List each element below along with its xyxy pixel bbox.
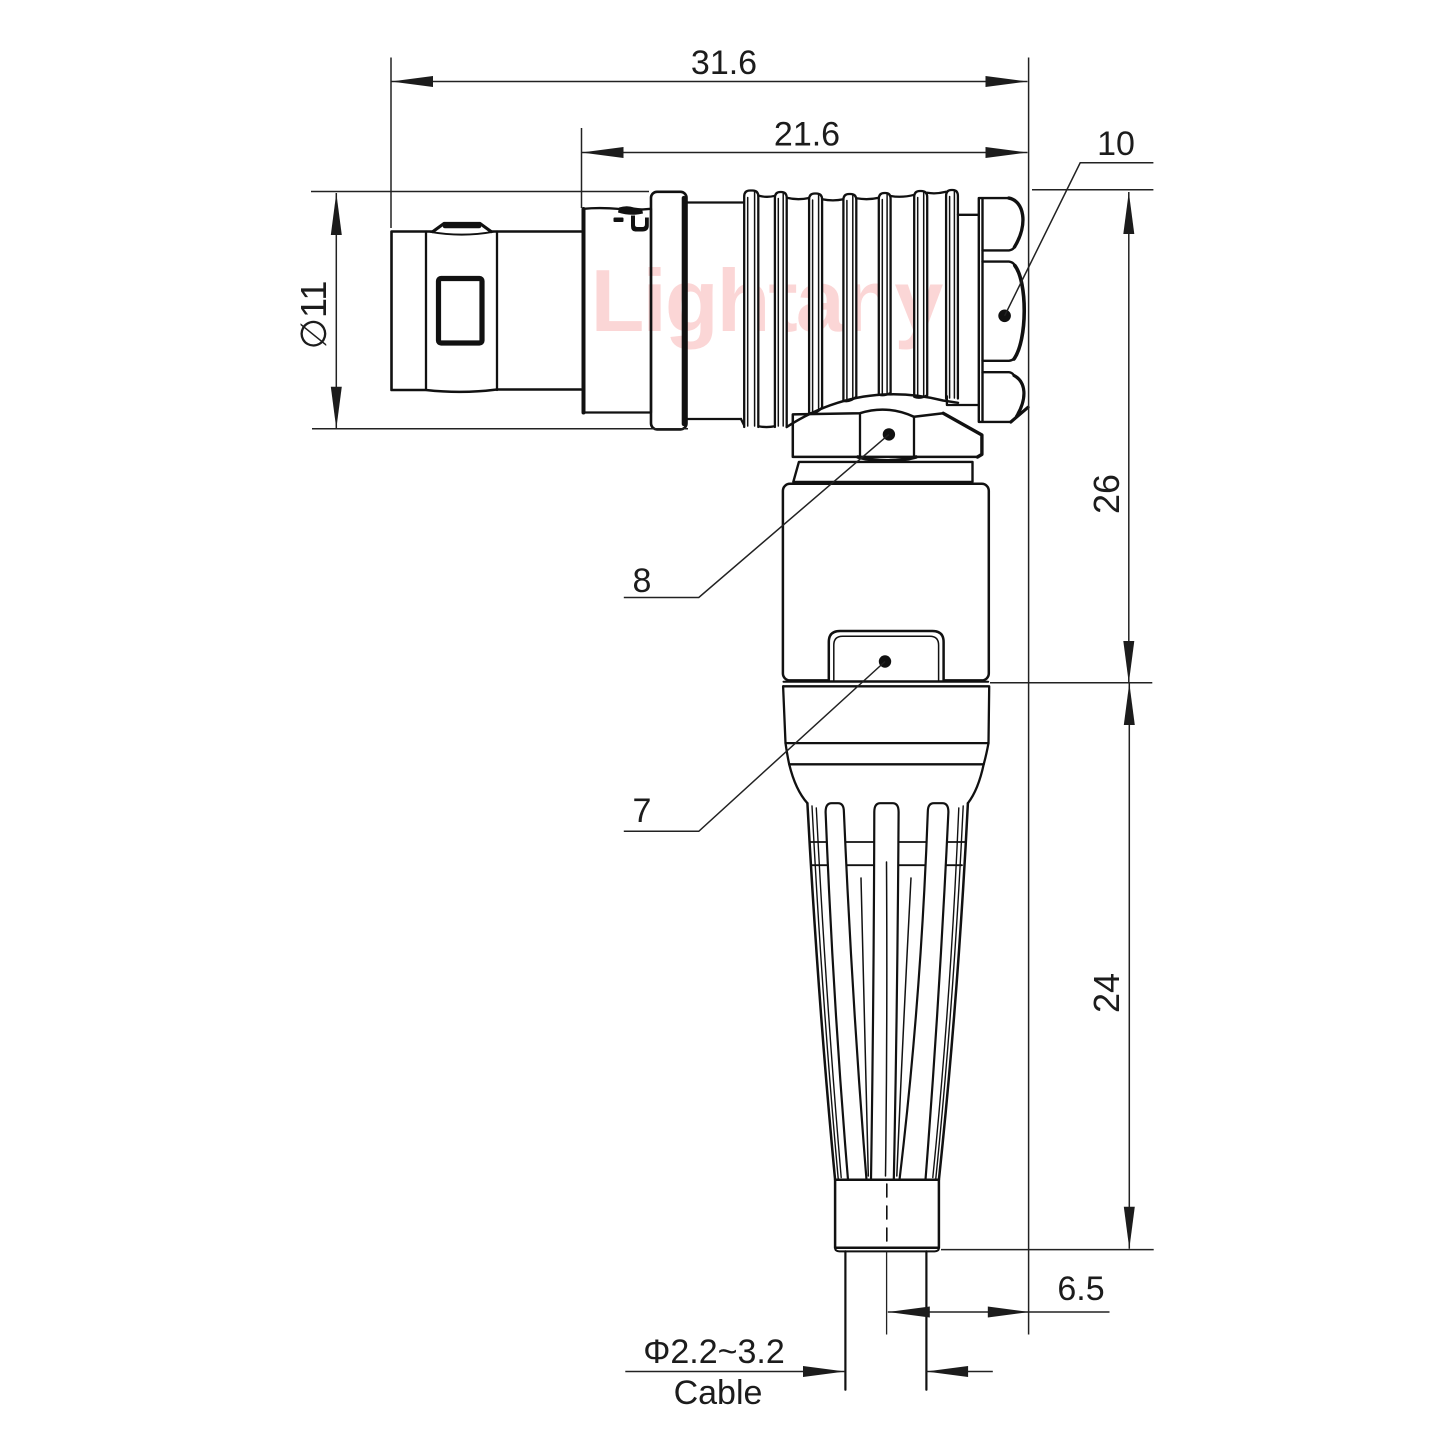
svg-text:31.6: 31.6 bbox=[691, 44, 757, 82]
svg-text:10: 10 bbox=[1097, 125, 1135, 163]
svg-text:Φ2.2~3.2: Φ2.2~3.2 bbox=[643, 1333, 785, 1371]
svg-text:8: 8 bbox=[633, 562, 652, 600]
svg-text:7: 7 bbox=[633, 792, 652, 830]
svg-text:21.6: 21.6 bbox=[774, 116, 840, 154]
svg-text:∅11: ∅11 bbox=[293, 281, 334, 350]
svg-text:24: 24 bbox=[1086, 973, 1127, 1013]
svg-text:Cable: Cable bbox=[674, 1374, 763, 1412]
svg-text:6.5: 6.5 bbox=[1057, 1270, 1104, 1308]
svg-text:26: 26 bbox=[1086, 474, 1127, 514]
